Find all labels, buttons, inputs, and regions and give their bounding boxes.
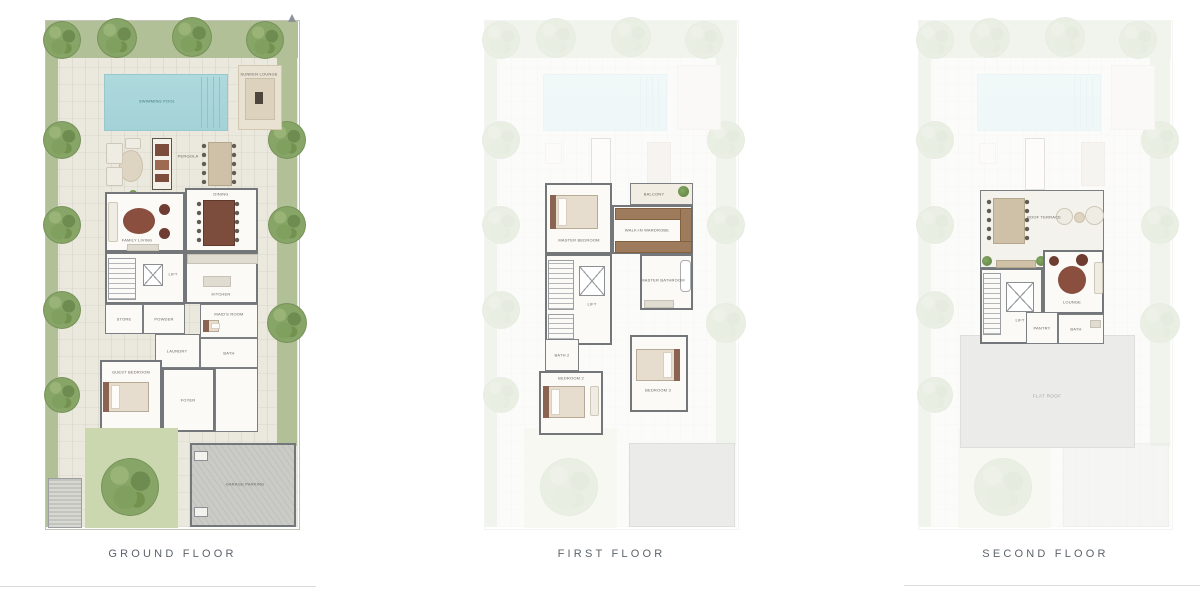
bath-label: BATH xyxy=(1070,326,1081,331)
lift-shaft xyxy=(579,266,605,296)
kitchen-counter xyxy=(187,254,258,264)
terrace-chairs xyxy=(986,198,992,242)
terrace-table xyxy=(993,198,1025,244)
bbq-table xyxy=(1074,212,1085,223)
powder-label: POWDER xyxy=(154,316,173,321)
lift-label: LIFT xyxy=(168,271,177,276)
outdoor-dining-chairs xyxy=(201,142,207,184)
bathtub xyxy=(680,260,691,292)
tree-icon xyxy=(43,21,81,59)
garage-roof xyxy=(1063,443,1169,527)
bed-2 xyxy=(543,386,585,418)
floor-caption: FIRST FLOOR xyxy=(444,548,779,560)
living-rug xyxy=(123,208,155,234)
pergola-label: PERGOLA xyxy=(178,153,199,158)
dining-chairs xyxy=(234,200,240,244)
lift-shaft xyxy=(1006,282,1034,312)
foyer-label: FOYER xyxy=(181,397,196,402)
pavilion-seat xyxy=(255,92,263,104)
bed-3 xyxy=(636,349,680,381)
tree-icon xyxy=(44,377,80,413)
maid-label: MAID'S ROOM xyxy=(214,311,243,316)
terrace-label: ROOF TERRACE xyxy=(1027,214,1061,219)
guest-bed xyxy=(103,382,149,412)
tree-icon xyxy=(43,121,81,159)
kitchen-island xyxy=(203,276,231,287)
second-floor-plan: FLAT ROOF ROOF TERRACE LOUNGE LIFT xyxy=(918,14,1173,530)
bar-shelf xyxy=(155,174,169,182)
tv-unit xyxy=(127,244,159,251)
dining-table xyxy=(203,200,235,246)
lounge-label: LOUNGE xyxy=(1063,299,1081,304)
bed2-label: BEDROOM 2 xyxy=(558,375,584,380)
tree-icon xyxy=(172,17,212,57)
outdoor-dining-table xyxy=(208,142,232,186)
basin xyxy=(1090,320,1101,328)
store-label: STORE xyxy=(117,316,132,321)
tree-icon xyxy=(246,21,284,59)
staircase xyxy=(548,314,574,340)
dining-chairs xyxy=(196,200,202,244)
bar-shelf xyxy=(155,144,169,156)
lift-label: LIFT xyxy=(587,301,596,306)
garage-wheel-stop xyxy=(194,507,208,517)
outdoor-sofa xyxy=(106,167,123,186)
slide-first-floor[interactable]: MASTER BEDROOM BALCONY WALK-IN WARDROBE … xyxy=(484,14,739,570)
floor-plan-carousel: SWIMMING POOL SUNKEN LOUNGE PERGOLA xyxy=(0,0,1200,590)
flat-roof xyxy=(960,335,1135,448)
bar-shelf xyxy=(155,160,169,170)
tree-icon xyxy=(43,206,81,244)
armchair xyxy=(159,204,170,215)
utility-box xyxy=(48,478,82,528)
staircase xyxy=(548,260,574,310)
tree-icon xyxy=(97,18,137,58)
vanity xyxy=(644,300,674,308)
garage-label: GARAGE PARKING xyxy=(226,481,265,486)
roof-label: FLAT ROOF xyxy=(1033,394,1061,399)
lounge-sofa xyxy=(1094,262,1103,294)
ground-floor-plan: SWIMMING POOL SUNKEN LOUNGE PERGOLA xyxy=(45,14,300,530)
kitchen-label: KITCHEN xyxy=(212,291,231,296)
slide-second-floor[interactable]: FLAT ROOF ROOF TERRACE LOUNGE LIFT xyxy=(918,14,1173,570)
carousel-rule-left xyxy=(0,586,316,587)
carousel-rule-right xyxy=(904,585,1200,586)
living-sofa xyxy=(108,202,118,242)
lounge-pouf xyxy=(1049,256,1059,266)
terrace-chairs xyxy=(1024,198,1030,242)
planter-icon xyxy=(982,256,992,266)
laundry-label: LAUNDRY xyxy=(167,348,187,353)
lift-label: LIFT xyxy=(1015,317,1024,322)
wardrobe-label: WALK-IN WARDROBE xyxy=(625,227,669,232)
bbq-counter xyxy=(1085,206,1104,225)
armchair xyxy=(159,228,170,239)
bench xyxy=(590,386,599,416)
staircase xyxy=(108,258,136,300)
guest-label: GUEST BEDROOM xyxy=(112,369,150,374)
terrace-bench xyxy=(996,260,1036,268)
lounge-pouf xyxy=(1076,254,1088,266)
balcony-label: BALCONY xyxy=(644,191,665,196)
garage-roof xyxy=(629,443,735,527)
tree-icon xyxy=(101,458,159,516)
balcony-plant-icon xyxy=(678,186,689,197)
garage-wheel-stop xyxy=(194,451,208,461)
tree-icon xyxy=(43,291,81,329)
dining-label: DINING xyxy=(213,191,228,196)
masterbath-label: MASTER BATHROOM xyxy=(641,277,685,282)
maid-bed xyxy=(203,320,219,332)
dress-room xyxy=(215,368,258,432)
bath2-label: BATH 2 xyxy=(555,352,570,357)
pool-label: SWIMMING POOL xyxy=(139,98,175,103)
tree-icon xyxy=(267,303,307,343)
first-floor-plan: MASTER BEDROOM BALCONY WALK-IN WARDROBE … xyxy=(484,14,739,530)
lift-shaft xyxy=(143,264,163,286)
north-arrow-icon xyxy=(288,14,296,22)
master-label: MASTER BEDROOM xyxy=(558,237,599,242)
floor-caption: SECOND FLOOR xyxy=(878,548,1200,560)
tree-icon xyxy=(268,206,306,244)
outdoor-chair xyxy=(125,138,141,149)
pantry-label: PANTRY xyxy=(1033,325,1050,330)
slide-ground-floor[interactable]: SWIMMING POOL SUNKEN LOUNGE PERGOLA xyxy=(45,14,300,570)
bath-label: BATH xyxy=(223,350,234,355)
outdoor-sofa xyxy=(106,143,123,164)
master-bed xyxy=(550,195,598,229)
staircase xyxy=(983,273,1001,335)
pavilion-label: SUNKEN LOUNGE xyxy=(240,71,277,76)
lounge-rug xyxy=(1058,266,1086,294)
living-label: FAMILY LIVING xyxy=(122,237,153,242)
floor-caption: GROUND FLOOR xyxy=(5,548,340,560)
outdoor-dining-chairs xyxy=(231,142,237,184)
wardrobe-counter xyxy=(615,241,692,253)
bed3-label: BEDROOM 3 xyxy=(645,387,671,392)
